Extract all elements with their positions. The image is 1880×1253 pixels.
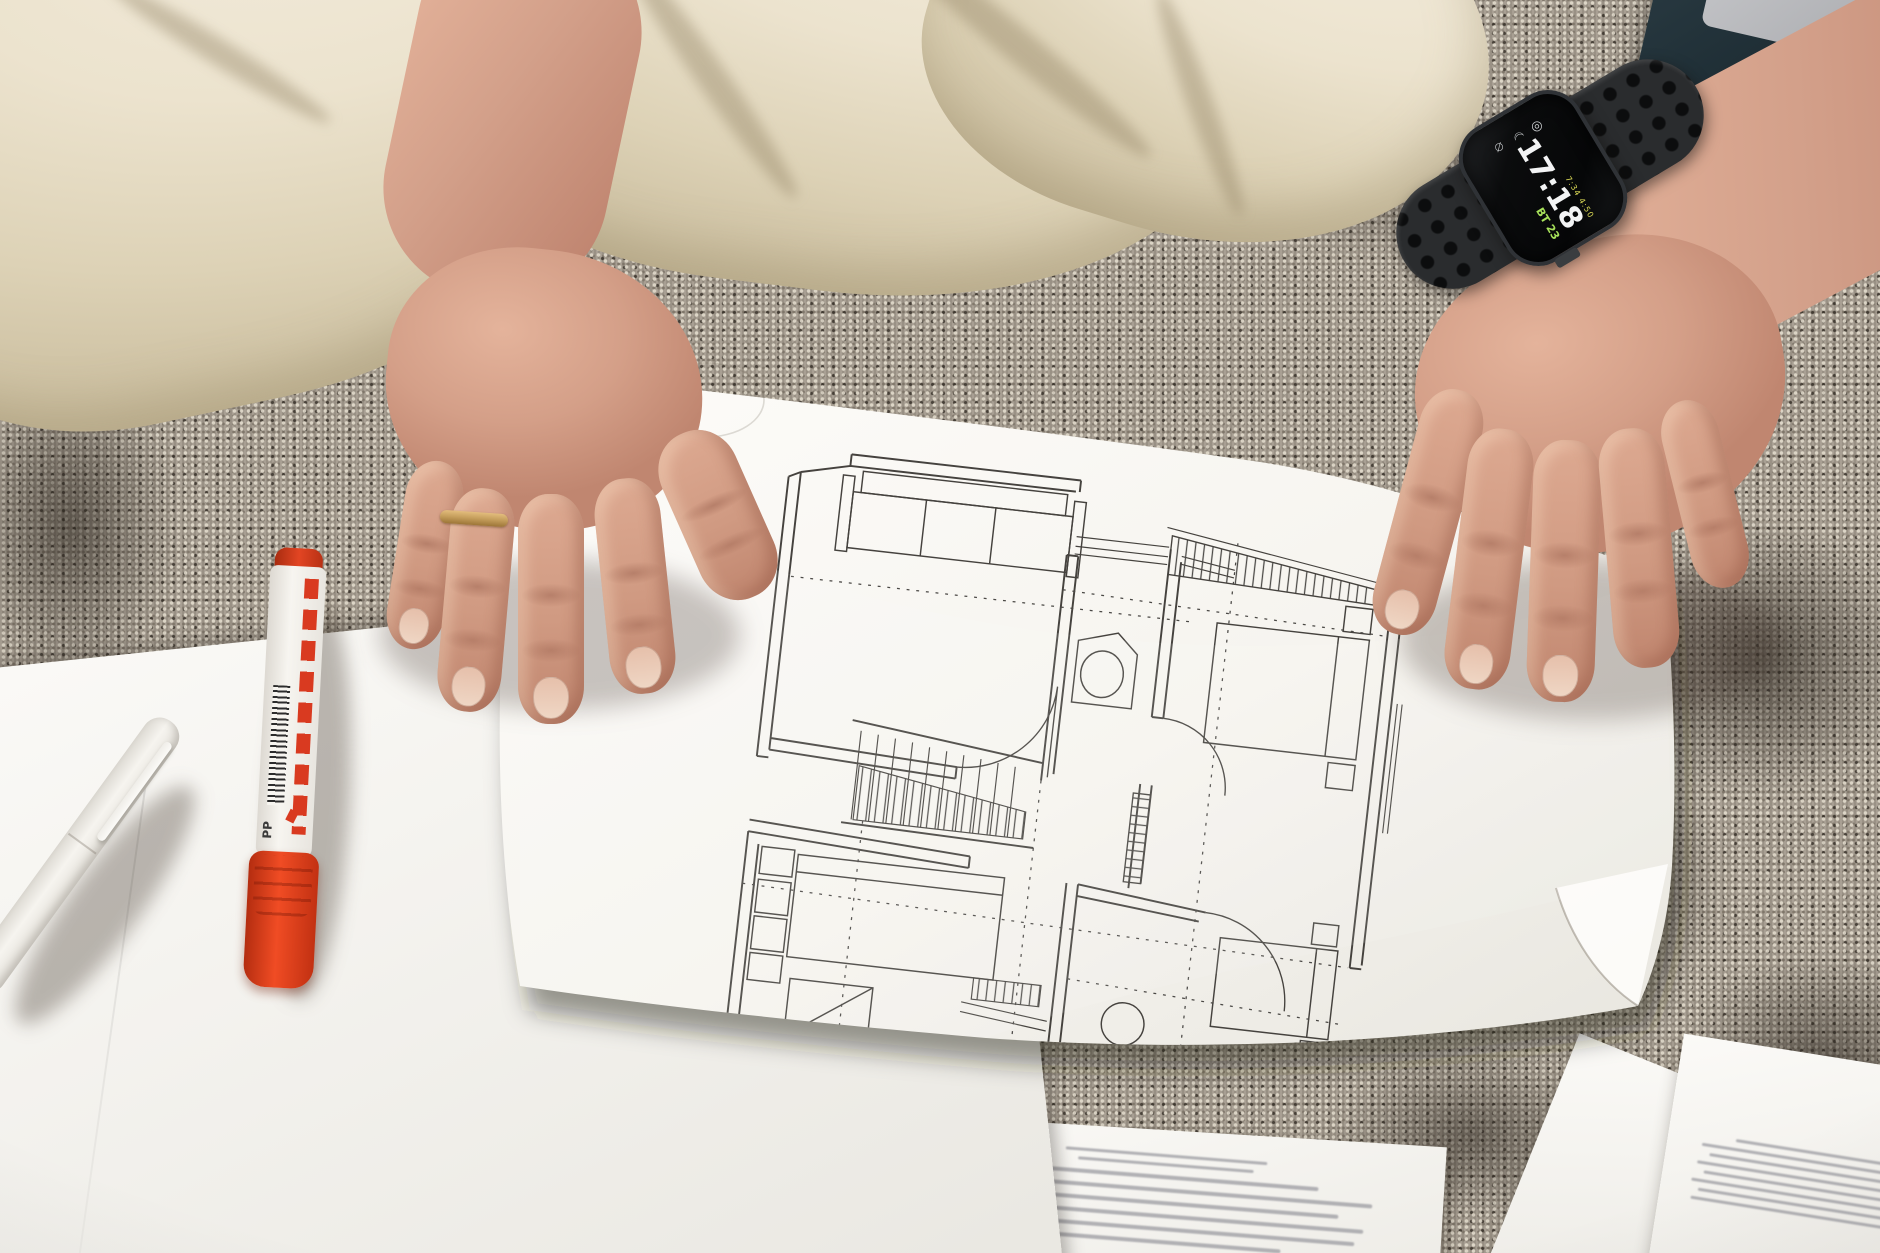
fingernail [450, 665, 487, 708]
fingernail [1542, 654, 1579, 697]
left-arm-and-hand [330, 0, 850, 760]
right-arm-and-hand: ◎ ☾ ⍉ 7:34 4:50 17:18 ВТ 23 [1380, 60, 1880, 820]
photo-scene: PP [0, 0, 1880, 1253]
fingernail [623, 645, 663, 691]
left-middle-finger [518, 494, 584, 724]
fingernail [533, 677, 569, 719]
left-index-finger [591, 475, 679, 697]
plan-stairs-bottom-right [1173, 1062, 1337, 1147]
fingernail [1457, 642, 1496, 686]
fingernail [1380, 586, 1423, 633]
fingernail [396, 606, 431, 646]
right-middle-finger [1525, 439, 1602, 703]
